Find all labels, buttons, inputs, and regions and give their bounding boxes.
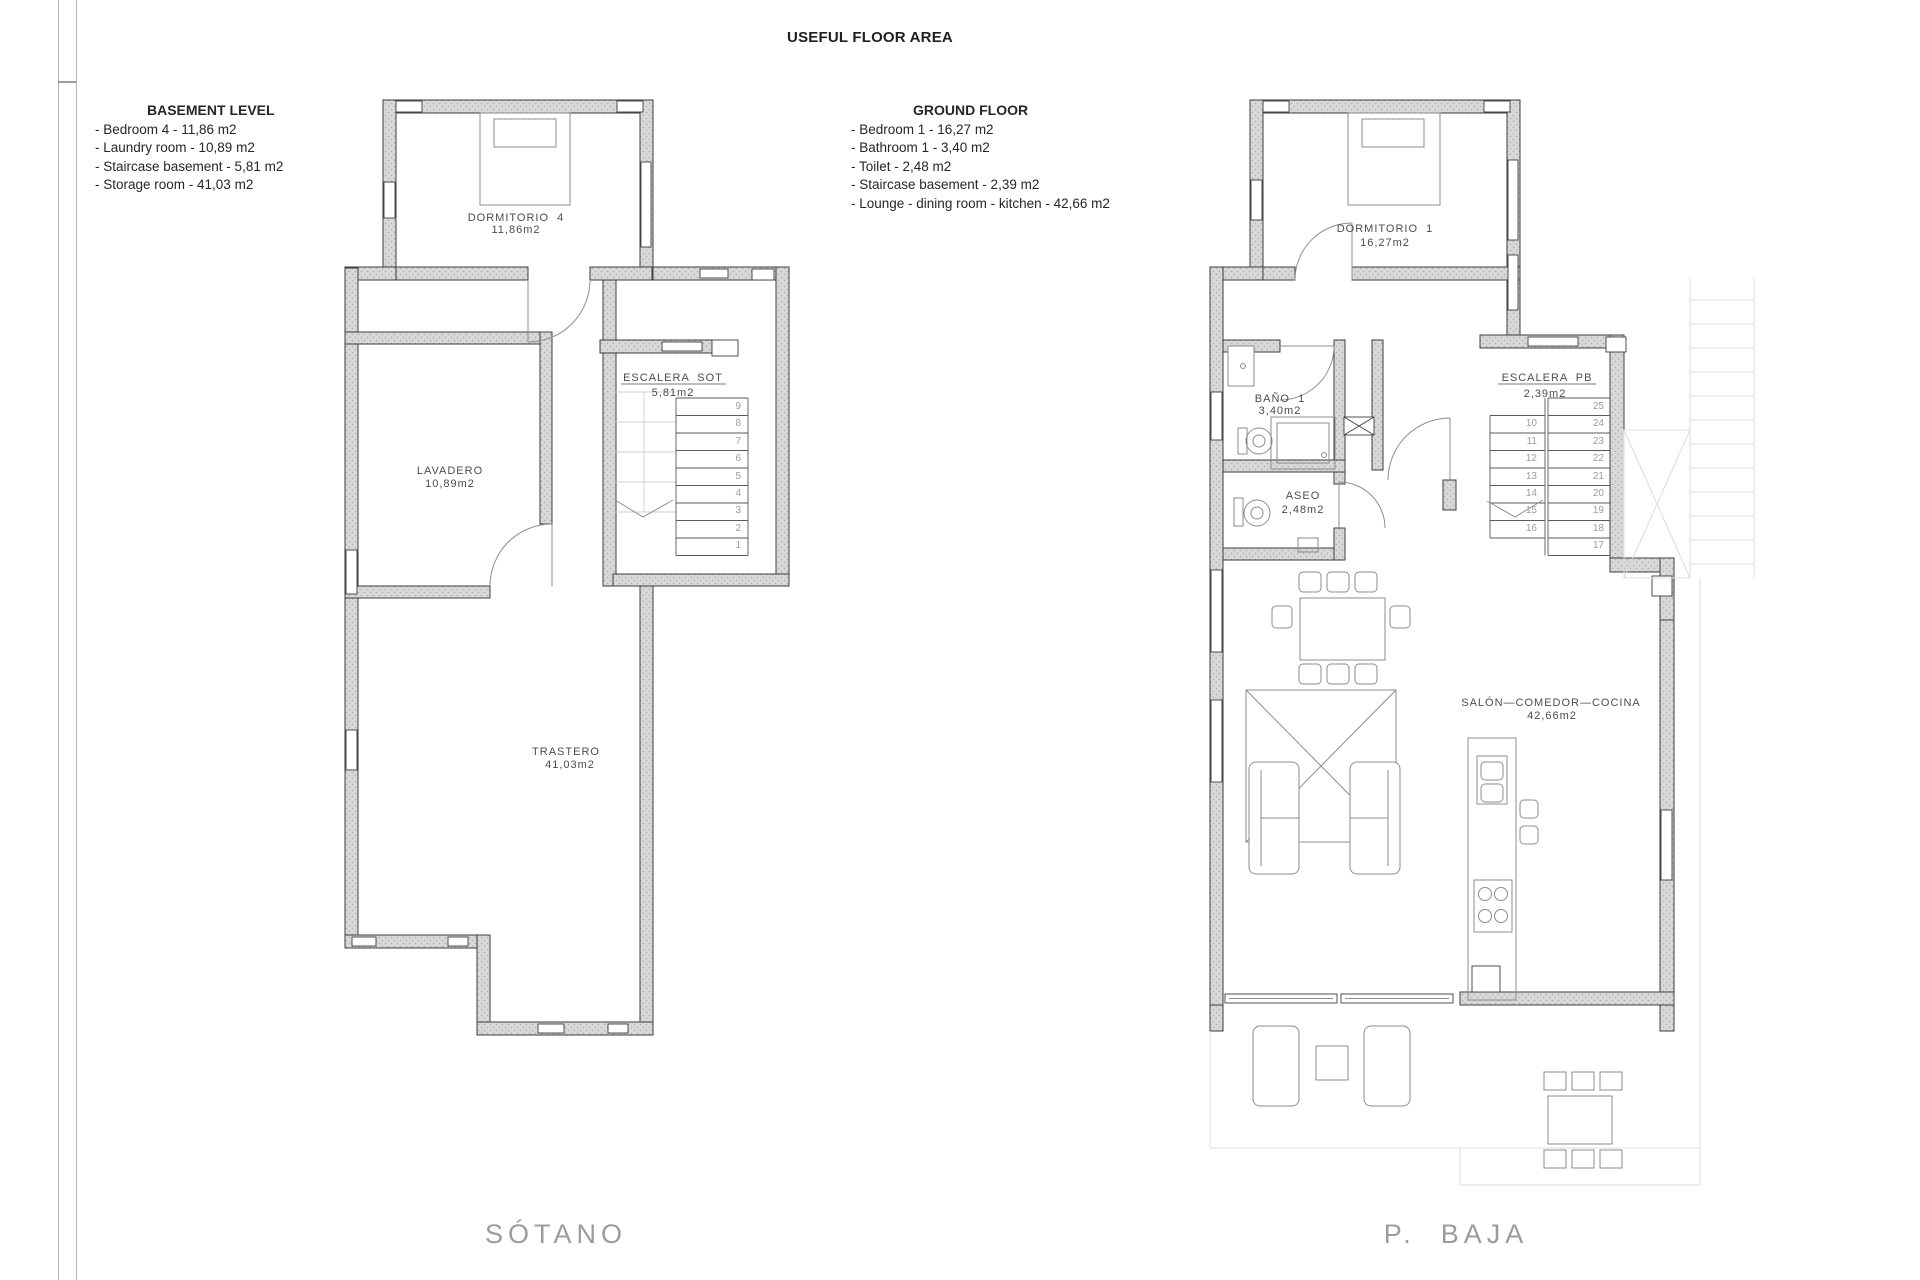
- floor-plan-drawing: 9 8 7 6 5 4 3 2 1 DORMITORIO 4 11,86m2 L…: [0, 0, 1920, 1280]
- stair-number: 16: [1526, 523, 1538, 534]
- stair-number: 2: [735, 523, 741, 534]
- basement-staircase: 9 8 7 6 5 4 3 2 1: [613, 392, 748, 556]
- stair-number: 22: [1593, 453, 1605, 464]
- outdoor-sofa: [1253, 1026, 1410, 1106]
- sofa: [1350, 762, 1400, 874]
- stair-number: 14: [1526, 488, 1538, 499]
- room-area-salon: 42,66m2: [1527, 710, 1577, 722]
- stair-number: 18: [1593, 523, 1605, 534]
- basement-walls: [345, 100, 789, 1035]
- room-label-escalera-pb: ESCALERA PB: [1502, 372, 1593, 384]
- kitchen-appliance: [1472, 966, 1500, 992]
- stair-number: 20: [1593, 488, 1605, 499]
- room-area-escalera-pb: 2,39m2: [1524, 388, 1567, 400]
- sofa: [1249, 762, 1299, 874]
- room-area-escalera-sot: 5,81m2: [652, 387, 695, 399]
- toilet-bathroom: [1238, 428, 1272, 454]
- dining-table-set: [1272, 572, 1410, 684]
- stair-number: 6: [735, 453, 741, 464]
- room-label-bano: BAÑO 1: [1255, 392, 1305, 405]
- exterior-stair-pergola: [1624, 278, 1754, 578]
- room-area-trastero: 41,03m2: [545, 759, 595, 771]
- plan-title-sotano: SÓTANO: [485, 1218, 627, 1249]
- stair-number: 13: [1526, 471, 1538, 482]
- stair-number: 24: [1593, 418, 1605, 429]
- stair-number: 17: [1593, 540, 1605, 551]
- stair-number: 23: [1593, 436, 1605, 447]
- bed-double: [480, 113, 570, 205]
- room-area-aseo: 2,48m2: [1282, 504, 1325, 516]
- stair-number: 25: [1593, 401, 1605, 412]
- room-label-aseo: ASEO: [1286, 490, 1321, 502]
- room-area-lavadero: 10,89m2: [425, 478, 475, 490]
- room-label-dormitorio4: DORMITORIO 4: [468, 212, 565, 224]
- stair-number: 11: [1527, 436, 1538, 447]
- stair-number: 9: [735, 401, 741, 412]
- room-label-salon: SALÓN—COMEDOR—COCINA: [1461, 696, 1641, 709]
- room-area-dormitorio1: 16,27m2: [1360, 237, 1410, 249]
- stair-number: 10: [1526, 418, 1538, 429]
- washbasin: [1228, 346, 1254, 386]
- ground-walls: [1210, 100, 1674, 1031]
- stair-number: 3: [735, 505, 741, 516]
- basement-plan: 9 8 7 6 5 4 3 2 1 DORMITORIO 4 11,86m2 L…: [345, 100, 789, 1249]
- room-area-bano: 3,40m2: [1259, 405, 1302, 417]
- terrace: [1210, 578, 1700, 1185]
- room-label-escalera-sot: ESCALERA SOT: [623, 372, 723, 384]
- kitchen-island: [1468, 738, 1538, 1000]
- room-area-dormitorio4: 11,86m2: [492, 224, 541, 236]
- room-label-trastero: TRASTERO: [532, 746, 600, 758]
- plan-title-pbaja: P. BAJA: [1384, 1219, 1529, 1249]
- stair-number: 21: [1593, 471, 1605, 482]
- stair-number: 15: [1526, 505, 1538, 516]
- stair-number: 19: [1593, 505, 1605, 516]
- ground-staircase: 10 11 12 13 14 15 16 25 24 23 22 21 20 1…: [1487, 398, 1610, 556]
- basement-room-labels: DORMITORIO 4 11,86m2 LAVADERO 10,89m2 ES…: [417, 212, 726, 771]
- stair-number: 7: [735, 436, 741, 447]
- stair-number: 12: [1526, 453, 1538, 464]
- vent-shaft: [1344, 417, 1374, 435]
- bed-double: [1348, 113, 1440, 205]
- stair-number: 8: [735, 418, 741, 429]
- room-label-lavadero: LAVADERO: [417, 465, 483, 477]
- basement-windows: [346, 101, 774, 1033]
- stair-number: 4: [735, 488, 741, 499]
- stair-number: 5: [735, 471, 741, 482]
- room-label-dormitorio1: DORMITORIO 1: [1337, 223, 1434, 235]
- ground-floor-plan: 10 11 12 13 14 15 16 25 24 23 22 21 20 1…: [1210, 100, 1754, 1249]
- cooktop: [1474, 880, 1512, 932]
- stair-number: 1: [735, 540, 741, 551]
- outdoor-dining-set: [1544, 1072, 1622, 1168]
